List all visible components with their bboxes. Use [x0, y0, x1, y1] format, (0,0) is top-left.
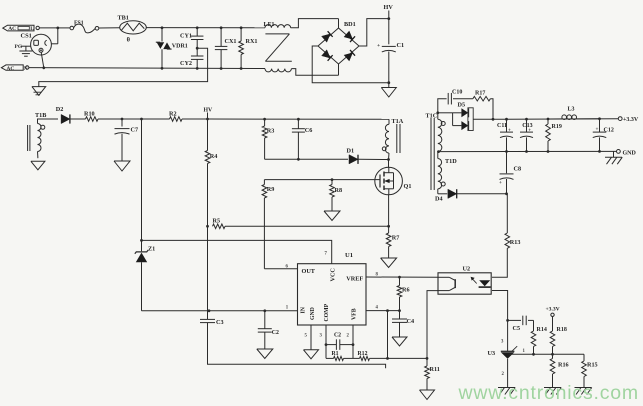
- svg-text:D4: D4: [435, 196, 443, 203]
- svg-text:C8: C8: [514, 166, 522, 173]
- svg-text:L3: L3: [568, 107, 575, 113]
- svg-text:3: 3: [320, 334, 323, 339]
- svg-text:PG: PG: [15, 44, 23, 50]
- svg-text:1: 1: [523, 349, 526, 354]
- svg-text:7: 7: [325, 252, 328, 257]
- svg-text:VCC: VCC: [330, 268, 337, 281]
- svg-text:5: 5: [305, 334, 308, 339]
- svg-text:R12: R12: [358, 351, 368, 357]
- svg-text:GND: GND: [623, 150, 637, 156]
- svg-text:OUT: OUT: [302, 268, 316, 275]
- svg-text:R18: R18: [557, 327, 567, 333]
- svg-text:C10: C10: [452, 90, 462, 96]
- svg-text:C7: C7: [131, 127, 139, 134]
- svg-text:IN: IN: [300, 306, 306, 313]
- svg-text:C2: C2: [334, 333, 341, 339]
- svg-text:R4: R4: [210, 153, 218, 160]
- svg-text:U3: U3: [488, 350, 496, 357]
- svg-text:3: 3: [501, 340, 504, 345]
- svg-text:T1D: T1D: [445, 158, 457, 165]
- svg-text:θ: θ: [127, 37, 131, 44]
- svg-text:COMP: COMP: [324, 303, 330, 321]
- svg-text:R6: R6: [402, 287, 410, 294]
- svg-text:T1B: T1B: [35, 112, 46, 119]
- svg-text:Q1: Q1: [404, 183, 412, 190]
- svg-text:C1: C1: [397, 42, 405, 49]
- svg-text:GND: GND: [310, 307, 316, 320]
- svg-text:+: +: [499, 180, 502, 186]
- svg-text:D1: D1: [347, 147, 355, 154]
- svg-text:1: 1: [286, 306, 289, 311]
- svg-text:D5: D5: [458, 102, 466, 109]
- svg-text:U1: U1: [345, 252, 353, 259]
- svg-text:www.cntronics.com: www.cntronics.com: [458, 382, 639, 404]
- svg-text:BD1: BD1: [344, 21, 356, 28]
- svg-text:C6: C6: [305, 127, 313, 134]
- svg-text:CX1: CX1: [225, 38, 237, 45]
- svg-text:R9: R9: [267, 186, 275, 193]
- svg-text:4: 4: [376, 305, 379, 310]
- svg-text:+3.3V: +3.3V: [546, 307, 560, 313]
- svg-text:HV: HV: [384, 4, 394, 11]
- svg-text:FS1: FS1: [74, 21, 84, 27]
- svg-text:L: L: [30, 26, 34, 32]
- svg-text:HV: HV: [204, 108, 214, 114]
- svg-text:VDR1: VDR1: [172, 44, 188, 50]
- svg-text:2: 2: [347, 334, 350, 339]
- svg-text:AC: AC: [7, 66, 15, 72]
- svg-text:R3: R3: [267, 128, 275, 135]
- svg-text:Z1: Z1: [148, 246, 155, 253]
- svg-text:T1A: T1A: [392, 118, 404, 125]
- svg-text:CY1: CY1: [180, 33, 192, 40]
- svg-text:CY2: CY2: [180, 60, 192, 67]
- svg-text:R8: R8: [335, 187, 343, 194]
- svg-text:R19: R19: [552, 124, 562, 130]
- svg-text:R13: R13: [510, 239, 521, 246]
- svg-text:R10: R10: [84, 111, 95, 118]
- svg-text:C2: C2: [272, 330, 279, 336]
- svg-text:D2: D2: [56, 106, 64, 113]
- svg-text:VFB: VFB: [352, 308, 358, 320]
- svg-text:R14: R14: [537, 327, 547, 333]
- svg-text:R16: R16: [558, 362, 569, 369]
- svg-text:TB1: TB1: [118, 15, 129, 22]
- svg-text:+: +: [377, 43, 380, 49]
- svg-text:2: 2: [502, 372, 505, 377]
- svg-text:RX1: RX1: [246, 38, 258, 45]
- svg-text:U2: U2: [463, 266, 471, 273]
- svg-text:CS1: CS1: [21, 32, 32, 39]
- svg-text:R11: R11: [430, 366, 440, 373]
- svg-text:R7: R7: [392, 235, 400, 242]
- svg-text:AC: AC: [8, 26, 16, 32]
- svg-text:C3: C3: [216, 319, 224, 326]
- svg-text:VREF: VREF: [346, 276, 363, 283]
- svg-text:R15: R15: [587, 362, 598, 369]
- svg-text:C4: C4: [407, 318, 415, 325]
- svg-text:C11: C11: [497, 123, 507, 129]
- svg-text:+3.3V: +3.3V: [623, 117, 639, 123]
- svg-text:C5: C5: [513, 325, 521, 332]
